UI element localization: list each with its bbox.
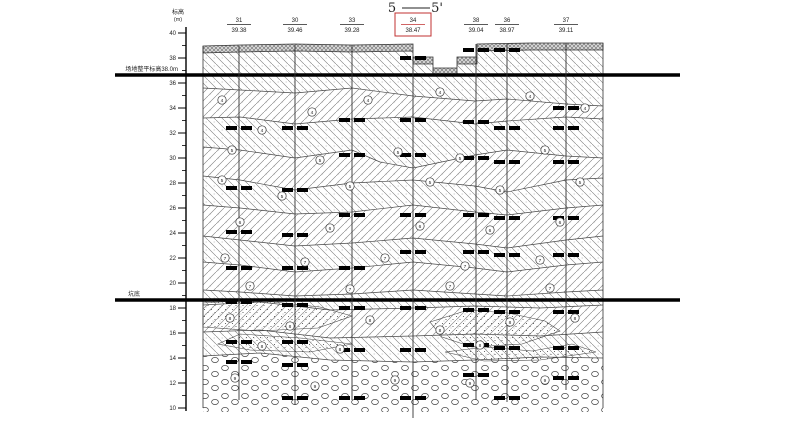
sample-marker (415, 213, 426, 217)
layer-id-number: 7 (464, 264, 467, 270)
sample-marker (282, 233, 293, 237)
borehole-number: 38 (473, 18, 480, 24)
sample-marker (553, 376, 564, 380)
axis-unit: (m) (174, 17, 182, 23)
sample-marker (415, 153, 426, 157)
sample-marker (241, 300, 252, 304)
borehole-label-37: 3739.11 (554, 18, 578, 34)
layer-id-badge: 4 (308, 108, 316, 116)
axis-tick-label: 14 (169, 356, 176, 362)
layer-id-number: 4 (261, 128, 264, 134)
sample-marker (339, 266, 350, 270)
sample-marker (282, 188, 293, 192)
layer-id-number: 5 (349, 184, 352, 190)
layer-id-badge: 4 (258, 126, 266, 134)
sample-marker (553, 253, 564, 257)
layer-id-badge: 5 (316, 156, 324, 164)
axis-tick-label: 26 (169, 206, 176, 212)
sample-marker (509, 346, 520, 350)
sample-marker (509, 160, 520, 164)
layer-id-badge: 9 (391, 376, 399, 384)
sample-marker (354, 306, 365, 310)
sample-marker (463, 156, 474, 160)
sample-marker (241, 126, 252, 130)
borehole-elevation: 38.47 (405, 28, 421, 34)
sample-marker (494, 126, 505, 130)
sample-marker (478, 48, 489, 52)
sample-marker (494, 160, 505, 164)
layer-id-number: 7 (224, 256, 227, 262)
sample-marker (509, 216, 520, 220)
layer-id-number: 5 (544, 148, 547, 154)
sample-marker (226, 126, 237, 130)
sample-marker (226, 230, 237, 234)
sample-marker (553, 160, 564, 164)
sample-marker (400, 213, 411, 217)
sample-marker (241, 230, 252, 234)
sample-marker (509, 310, 520, 314)
layer-id-number: 7 (349, 287, 352, 293)
sample-marker (463, 213, 474, 217)
sample-marker (339, 153, 350, 157)
layer-id-badge: 4 (364, 96, 372, 104)
sample-marker (494, 346, 505, 350)
layer-id-badge: 6 (486, 226, 494, 234)
layer-id-number: 4 (311, 110, 314, 116)
layer-id-number: 6 (239, 220, 242, 226)
sample-marker (297, 363, 308, 367)
geological-cross-section: 3139.383039.463339.283438.473839.043638.… (0, 0, 786, 428)
layer-id-badge: 8 (258, 342, 266, 350)
sample-marker (553, 126, 564, 130)
sample-marker (463, 250, 474, 254)
sample-marker (400, 306, 411, 310)
layer-id-badge: 5 (426, 178, 434, 186)
layer-id-number: 7 (384, 256, 387, 262)
layer-id-number: 8 (339, 347, 342, 353)
sample-marker (494, 310, 505, 314)
layer-id-badge: 8 (286, 322, 294, 330)
layer-id-number: 7 (304, 260, 307, 266)
sample-marker (415, 56, 426, 60)
sample-marker (282, 396, 293, 400)
sample-marker (415, 306, 426, 310)
layer-id-number: 4 (439, 90, 442, 96)
layer-id-badge: 5 (218, 176, 226, 184)
layer-id-badge: 4 (581, 104, 589, 112)
sample-marker (339, 213, 350, 217)
borehole-number: 34 (410, 18, 417, 24)
layer-id-badge: 5 (278, 192, 286, 200)
section-title-left: 5 (388, 1, 396, 16)
sample-marker (297, 303, 308, 307)
sample-marker (478, 250, 489, 254)
borehole-number: 30 (292, 18, 299, 24)
section-title: 5 5' (388, 1, 443, 16)
section-canvas: 3139.383039.463339.283438.473839.043638.… (0, 0, 786, 428)
sample-marker (400, 118, 411, 122)
axis-tick-label: 34 (169, 106, 176, 112)
axis-tick-label: 10 (169, 406, 176, 412)
layer-id-number: 4 (367, 98, 370, 104)
layer-id-number: 7 (549, 286, 552, 292)
sample-marker (400, 396, 411, 400)
sample-marker (463, 120, 474, 124)
sample-marker (282, 303, 293, 307)
axis-tick-label: 38 (169, 56, 176, 62)
layer-id-number: 5 (459, 156, 462, 162)
layer-id-number: 5 (429, 180, 432, 186)
sample-marker (463, 343, 474, 347)
sample-marker (241, 360, 252, 364)
sample-marker (509, 126, 520, 130)
sample-marker (415, 250, 426, 254)
layer-id-badge: 6 (416, 222, 424, 230)
sample-marker (354, 213, 365, 217)
layer-id-number: 5 (397, 150, 400, 156)
sample-marker (568, 310, 579, 314)
layer-id-badge: 5 (496, 186, 504, 194)
layer-id-badge: 6 (326, 224, 334, 232)
sample-marker (568, 376, 579, 380)
sample-marker (553, 106, 564, 110)
sample-marker (509, 396, 520, 400)
axis-tick-label: 32 (169, 131, 176, 137)
sample-marker (354, 118, 365, 122)
sample-marker (463, 308, 474, 312)
sample-marker (415, 118, 426, 122)
layer-id-number: 8 (289, 324, 292, 330)
sample-marker (478, 308, 489, 312)
borehole-label-30: 3039.46 (283, 18, 307, 34)
layer-id-number: 8 (439, 328, 442, 334)
sample-marker (568, 106, 579, 110)
elevation-annotation: 坑底 (128, 290, 140, 298)
sample-marker (415, 348, 426, 352)
sample-marker (297, 396, 308, 400)
sample-marker (226, 266, 237, 270)
layer-id-number: 9 (394, 378, 397, 384)
layer-id-badge: 7 (221, 254, 229, 262)
layer-id-badge: 8 (506, 318, 514, 326)
sample-marker (282, 340, 293, 344)
axis-tick-label: 28 (169, 181, 176, 187)
borehole-label-38: 3839.04 (464, 18, 488, 34)
axis-tick-label: 30 (169, 156, 176, 162)
layer-id-number: 5 (579, 180, 582, 186)
borehole-elevation: 39.11 (559, 28, 574, 34)
sample-marker (282, 363, 293, 367)
sample-marker (241, 266, 252, 270)
sample-marker (339, 306, 350, 310)
sample-marker (226, 300, 237, 304)
axis-title: 标高 (172, 8, 184, 16)
sample-marker (282, 266, 293, 270)
sample-marker (297, 340, 308, 344)
layer-id-badge: 5 (228, 146, 236, 154)
sample-marker (494, 216, 505, 220)
sample-marker (568, 160, 579, 164)
elevation-annotation: 场地整平标高38.0m (125, 65, 178, 73)
layer-id-number: 8 (479, 343, 482, 349)
layer-id-badge: 5 (576, 178, 584, 186)
sample-marker (568, 346, 579, 350)
layer-id-badge: 5 (346, 182, 354, 190)
sample-marker (226, 360, 237, 364)
sample-marker (339, 118, 350, 122)
sample-marker (568, 126, 579, 130)
layer-id-badge: 4 (218, 96, 226, 104)
borehole-label-34: 3438.47 (395, 13, 431, 36)
sample-marker (478, 156, 489, 160)
layer-id-badge: 7 (461, 262, 469, 270)
layer-id-badge: 6 (556, 218, 564, 226)
sample-marker (553, 346, 564, 350)
sample-marker (241, 186, 252, 190)
axis-tick-label: 22 (169, 256, 176, 262)
sample-marker (282, 126, 293, 130)
borehole-elevation: 38.97 (499, 28, 515, 34)
sample-marker (415, 396, 426, 400)
axis-tick-label: 12 (169, 381, 176, 387)
layer-id-number: 5 (319, 158, 322, 164)
sample-marker (354, 348, 365, 352)
sample-marker (478, 213, 489, 217)
axis-tick-label: 16 (169, 331, 176, 337)
sample-marker (297, 126, 308, 130)
sample-marker (354, 266, 365, 270)
layer-id-badge: 9 (541, 376, 549, 384)
sample-marker (509, 253, 520, 257)
axis-tick-label: 20 (169, 281, 176, 287)
layer-id-number: 6 (559, 220, 562, 226)
borehole-elevation: 39.28 (344, 28, 360, 34)
layer-id-number: 5 (221, 178, 224, 184)
sample-marker (400, 348, 411, 352)
sample-marker (226, 186, 237, 190)
sample-marker (553, 310, 564, 314)
axis-tick-label: 18 (169, 306, 176, 312)
layer-id-badge: 5 (541, 146, 549, 154)
axis-tick-label: 40 (169, 31, 176, 37)
sample-marker (494, 396, 505, 400)
layer-id-badge: 4 (436, 88, 444, 96)
sample-marker (297, 188, 308, 192)
layer-id-badge: 8 (476, 341, 484, 349)
layer-id-badge: 5 (394, 148, 402, 156)
borehole-number: 31 (236, 18, 243, 24)
layer-id-number: 6 (419, 224, 422, 230)
layer-id-badge: 9 (231, 374, 239, 382)
sample-marker (226, 340, 237, 344)
layer-id-badge: 8 (366, 316, 374, 324)
layer-id-number: 5 (281, 194, 284, 200)
borehole-elevation: 39.38 (231, 28, 247, 34)
sample-marker (494, 253, 505, 257)
layer-id-badge: 7 (536, 256, 544, 264)
layer-id-badge: 4 (526, 92, 534, 100)
layer-id-number: 4 (529, 94, 532, 100)
layer-id-number: 7 (449, 284, 452, 290)
sample-marker (478, 120, 489, 124)
layer-id-number: 8 (229, 316, 232, 322)
borehole-number: 36 (504, 18, 511, 24)
borehole-elevation: 39.46 (287, 28, 303, 34)
layer-id-number: 9 (314, 384, 317, 390)
layer-id-badge: 9 (311, 382, 319, 390)
layer-id-number: 7 (539, 258, 542, 264)
layer-id-badge: 7 (381, 254, 389, 262)
layer-id-badge: 5 (456, 154, 464, 162)
layer-id-badge: 7 (546, 284, 554, 292)
layer-id-number: 9 (234, 376, 237, 382)
layer-id-number: 6 (489, 228, 492, 234)
layer-id-badge: 8 (336, 345, 344, 353)
layer-id-badge: 6 (236, 218, 244, 226)
section-title-right: 5' (431, 1, 443, 16)
sample-marker (463, 373, 474, 377)
sample-marker (400, 56, 411, 60)
borehole-number: 37 (563, 18, 570, 24)
layer-id-number: 5 (499, 188, 502, 194)
sample-marker (568, 216, 579, 220)
sample-marker (297, 266, 308, 270)
layer-id-badge: 9 (466, 379, 474, 387)
sample-marker (297, 233, 308, 237)
layer-id-badge: 7 (246, 282, 254, 290)
axis-tick-label: 36 (169, 81, 176, 87)
sample-marker (494, 48, 505, 52)
axis-tick-label: 24 (169, 231, 176, 237)
layer-id-badge: 8 (571, 314, 579, 322)
sample-marker (354, 396, 365, 400)
layer-id-badge: 7 (301, 258, 309, 266)
layer-id-badge: 8 (226, 314, 234, 322)
layer-id-number: 4 (221, 98, 224, 104)
sample-marker (568, 253, 579, 257)
layer-id-badge: 7 (446, 282, 454, 290)
layer-id-number: 9 (544, 378, 547, 384)
layer-id-number: 9 (469, 381, 472, 387)
layer-id-badge: 7 (346, 285, 354, 293)
layer-id-number: 8 (574, 316, 577, 322)
layer-id-number: 5 (231, 148, 234, 154)
sample-marker (241, 340, 252, 344)
layer-id-badge: 8 (436, 326, 444, 334)
borehole-label-36: 3638.97 (495, 18, 519, 34)
layer-id-number: 7 (249, 284, 252, 290)
sample-marker (354, 153, 365, 157)
borehole-number: 33 (349, 18, 356, 24)
layer-id-number: 4 (584, 106, 587, 112)
layer-id-number: 8 (369, 318, 372, 324)
borehole-label-33: 3339.28 (340, 18, 364, 34)
sample-marker (339, 396, 350, 400)
layer-id-number: 6 (329, 226, 332, 232)
layer-id-number: 8 (509, 320, 512, 326)
sample-marker (463, 48, 474, 52)
sample-marker (509, 48, 520, 52)
borehole-label-31: 3139.38 (227, 18, 251, 34)
sample-marker (478, 373, 489, 377)
layer-id-number: 8 (261, 344, 264, 350)
borehole-elevation: 39.04 (468, 28, 484, 34)
sample-marker (400, 250, 411, 254)
